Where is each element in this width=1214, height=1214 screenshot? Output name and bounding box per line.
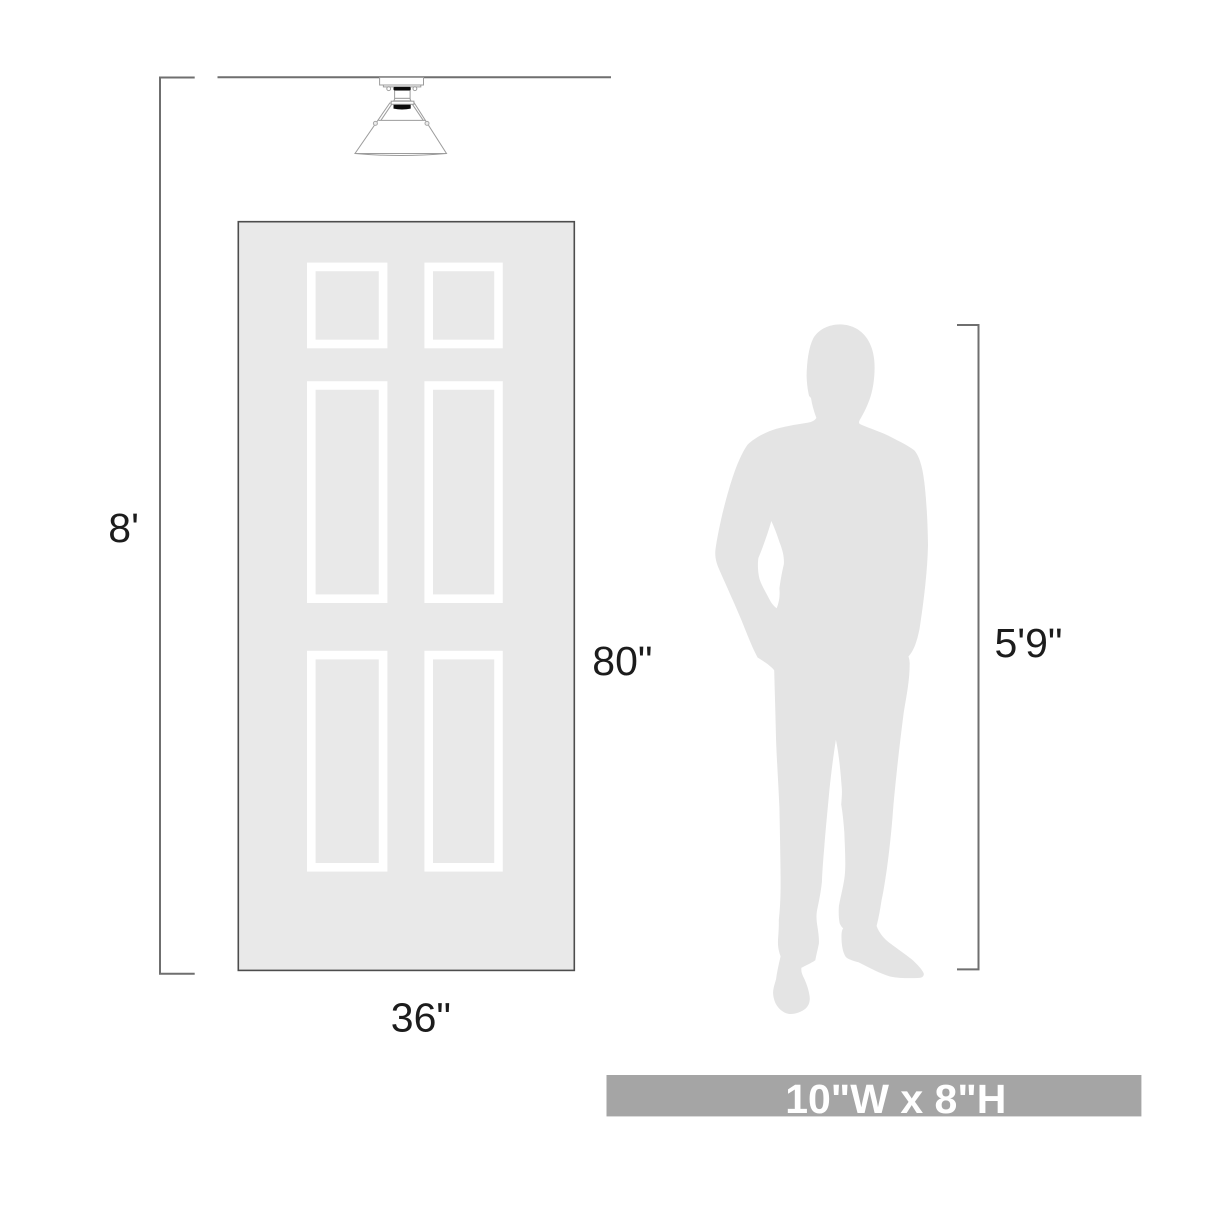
svg-text:8': 8' <box>108 505 139 551</box>
svg-text:36": 36" <box>391 995 451 1041</box>
svg-text:10"W x 8"H: 10"W x 8"H <box>785 1076 1006 1122</box>
svg-text:5'9": 5'9" <box>995 620 1063 666</box>
svg-text:80": 80" <box>592 638 652 684</box>
